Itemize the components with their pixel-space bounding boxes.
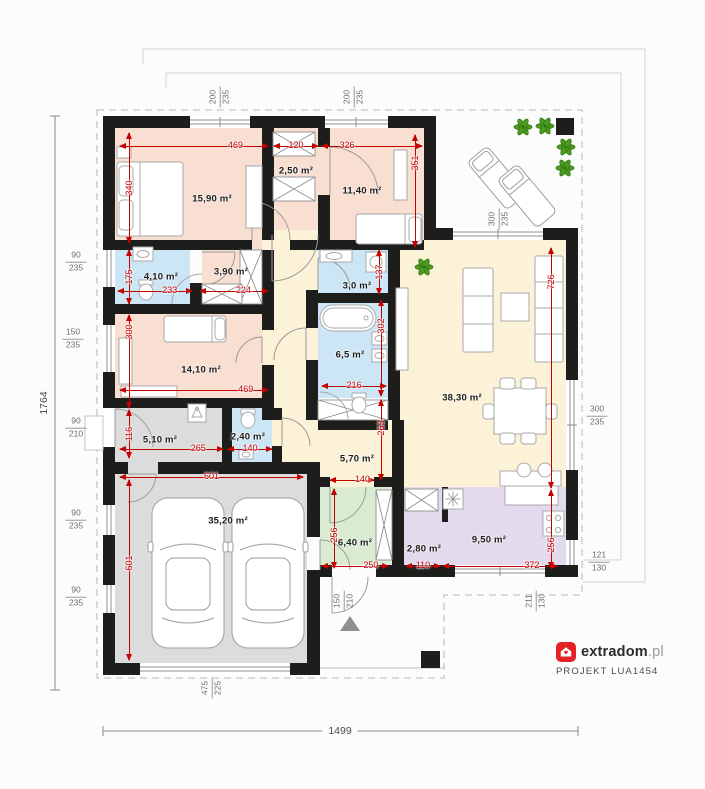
opening-width: 200 [343, 90, 353, 104]
opening-width: 200 [209, 90, 219, 104]
opening-height: 235 [66, 341, 80, 351]
opening-size-label: 121130 [589, 551, 610, 574]
opening-size-label: 90235 [66, 509, 87, 532]
brand-name: extradom.pl [581, 644, 664, 660]
opening-height: 235 [69, 264, 83, 274]
extradom-logo-icon [556, 642, 576, 662]
opening-size-label: 90210 [66, 417, 87, 440]
opening-height: 130 [592, 564, 606, 574]
opening-height: 225 [214, 681, 224, 695]
opening-width: 150 [66, 328, 80, 338]
opening-height: 235 [590, 418, 604, 428]
opening-size-label: 90235 [66, 251, 87, 274]
opening-size-label: 200235 [343, 87, 366, 108]
opening-height: 235 [222, 90, 232, 104]
opening-width: 150 [333, 594, 343, 608]
opening-width: 90 [71, 417, 80, 427]
opening-width: 90 [71, 586, 80, 596]
brand-name-bold: extradom [581, 644, 648, 660]
opening-height: 210 [346, 594, 356, 608]
overall-width-label: 1499 [322, 725, 357, 737]
opening-height: 235 [501, 212, 511, 226]
opening-width: 475 [201, 681, 211, 695]
project-code: PROJEKT LUA1454 [556, 666, 664, 677]
opening-width: 121 [592, 551, 606, 561]
opening-height: 130 [538, 594, 548, 608]
opening-size-label: 300235 [488, 209, 511, 230]
floor-plan: 15,90 m²2,50 m²11,40 m²4,10 m²3,90 m²3,0… [0, 0, 705, 789]
opening-size-label: 150210 [333, 591, 356, 612]
opening-size-label: 200235 [209, 87, 232, 108]
opening-width: 211 [525, 594, 535, 608]
opening-height: 210 [69, 430, 83, 440]
opening-width: 90 [71, 251, 80, 261]
opening-size-label: 300235 [587, 405, 608, 428]
opening-height: 235 [356, 90, 366, 104]
opening-width: 300 [488, 212, 498, 226]
opening-size-label: 211130 [525, 591, 548, 612]
overall-height-label: 1764 [38, 391, 50, 414]
opening-size-label: 90235 [66, 586, 87, 609]
opening-width: 300 [590, 405, 604, 415]
opening-height: 235 [69, 599, 83, 609]
opening-width: 90 [71, 509, 80, 519]
opening-size-label: 150235 [63, 328, 84, 351]
brand-block: extradom.pl PROJEKT LUA1454 [556, 642, 664, 677]
opening-size-label: 475225 [201, 678, 224, 699]
opening-height: 235 [69, 522, 83, 532]
brand-name-tld: .pl [648, 644, 664, 660]
